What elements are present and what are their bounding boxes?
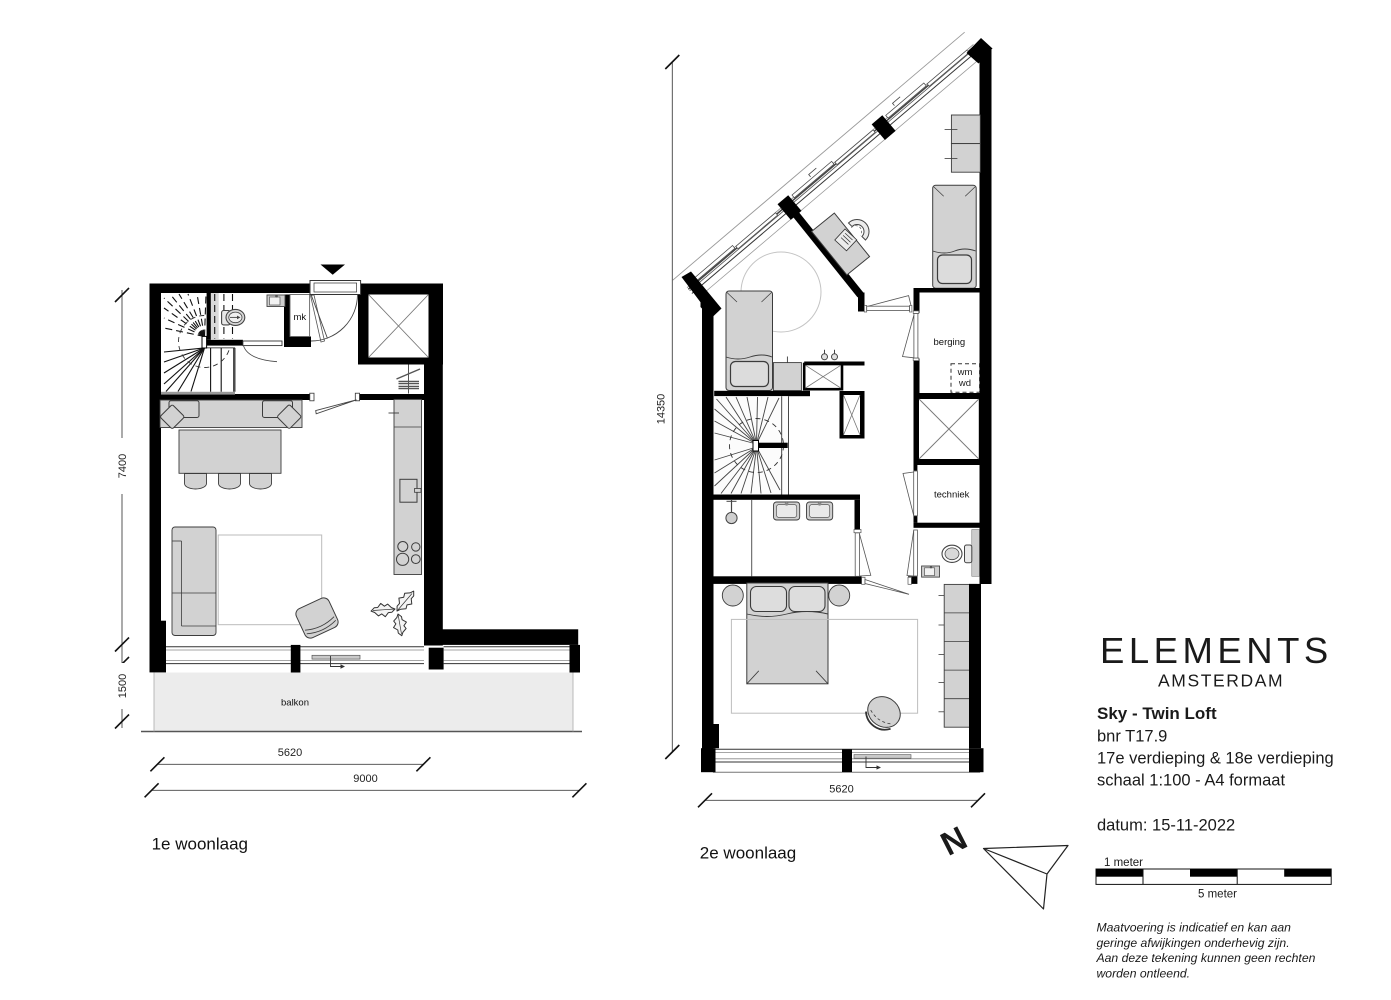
svg-text:N: N: [935, 819, 973, 863]
svg-text:schaal 1:100 - A4 formaat: schaal 1:100 - A4 formaat: [1097, 772, 1285, 790]
svg-text:14350: 14350: [656, 394, 668, 425]
svg-text:balkon: balkon: [281, 698, 309, 709]
svg-text:5 meter: 5 meter: [1198, 889, 1237, 901]
svg-text:2e woonlaag: 2e woonlaag: [700, 844, 796, 863]
svg-text:Maatvoering is indicatief en k: Maatvoering is indicatief en kan aan: [1097, 921, 1292, 935]
svg-text:geringe afwijkingen onderhevig: geringe afwijkingen onderhevig zijn.: [1097, 936, 1290, 950]
svg-text:worden ontleend.: worden ontleend.: [1097, 966, 1191, 980]
svg-text:mk: mk: [294, 312, 307, 323]
svg-text:berging: berging: [934, 337, 966, 348]
svg-text:techniek: techniek: [934, 490, 970, 501]
svg-text:5620: 5620: [829, 783, 853, 795]
svg-text:5620: 5620: [278, 747, 302, 759]
svg-text:Sky - Twin Loft: Sky - Twin Loft: [1097, 704, 1217, 723]
svg-text:7400: 7400: [117, 454, 129, 478]
svg-text:17e verdieping & 18e verdiepin: 17e verdieping & 18e verdieping: [1097, 750, 1334, 768]
svg-text:wm: wm: [957, 367, 973, 378]
svg-text:9000: 9000: [353, 773, 377, 785]
svg-text:wd: wd: [958, 378, 971, 389]
svg-text:bnr T17.9: bnr T17.9: [1097, 728, 1167, 746]
svg-text:1e woonlaag: 1e woonlaag: [152, 835, 248, 854]
svg-text:1 meter: 1 meter: [1104, 857, 1143, 869]
svg-text:1500: 1500: [117, 674, 129, 698]
svg-text:ELEMENTS: ELEMENTS: [1100, 630, 1333, 671]
svg-text:datum: 15-11-2022: datum: 15-11-2022: [1097, 817, 1235, 835]
svg-text:AMSTERDAM: AMSTERDAM: [1158, 671, 1284, 691]
svg-text:Aan deze tekening kunnen geen: Aan deze tekening kunnen geen rechten: [1096, 951, 1316, 965]
